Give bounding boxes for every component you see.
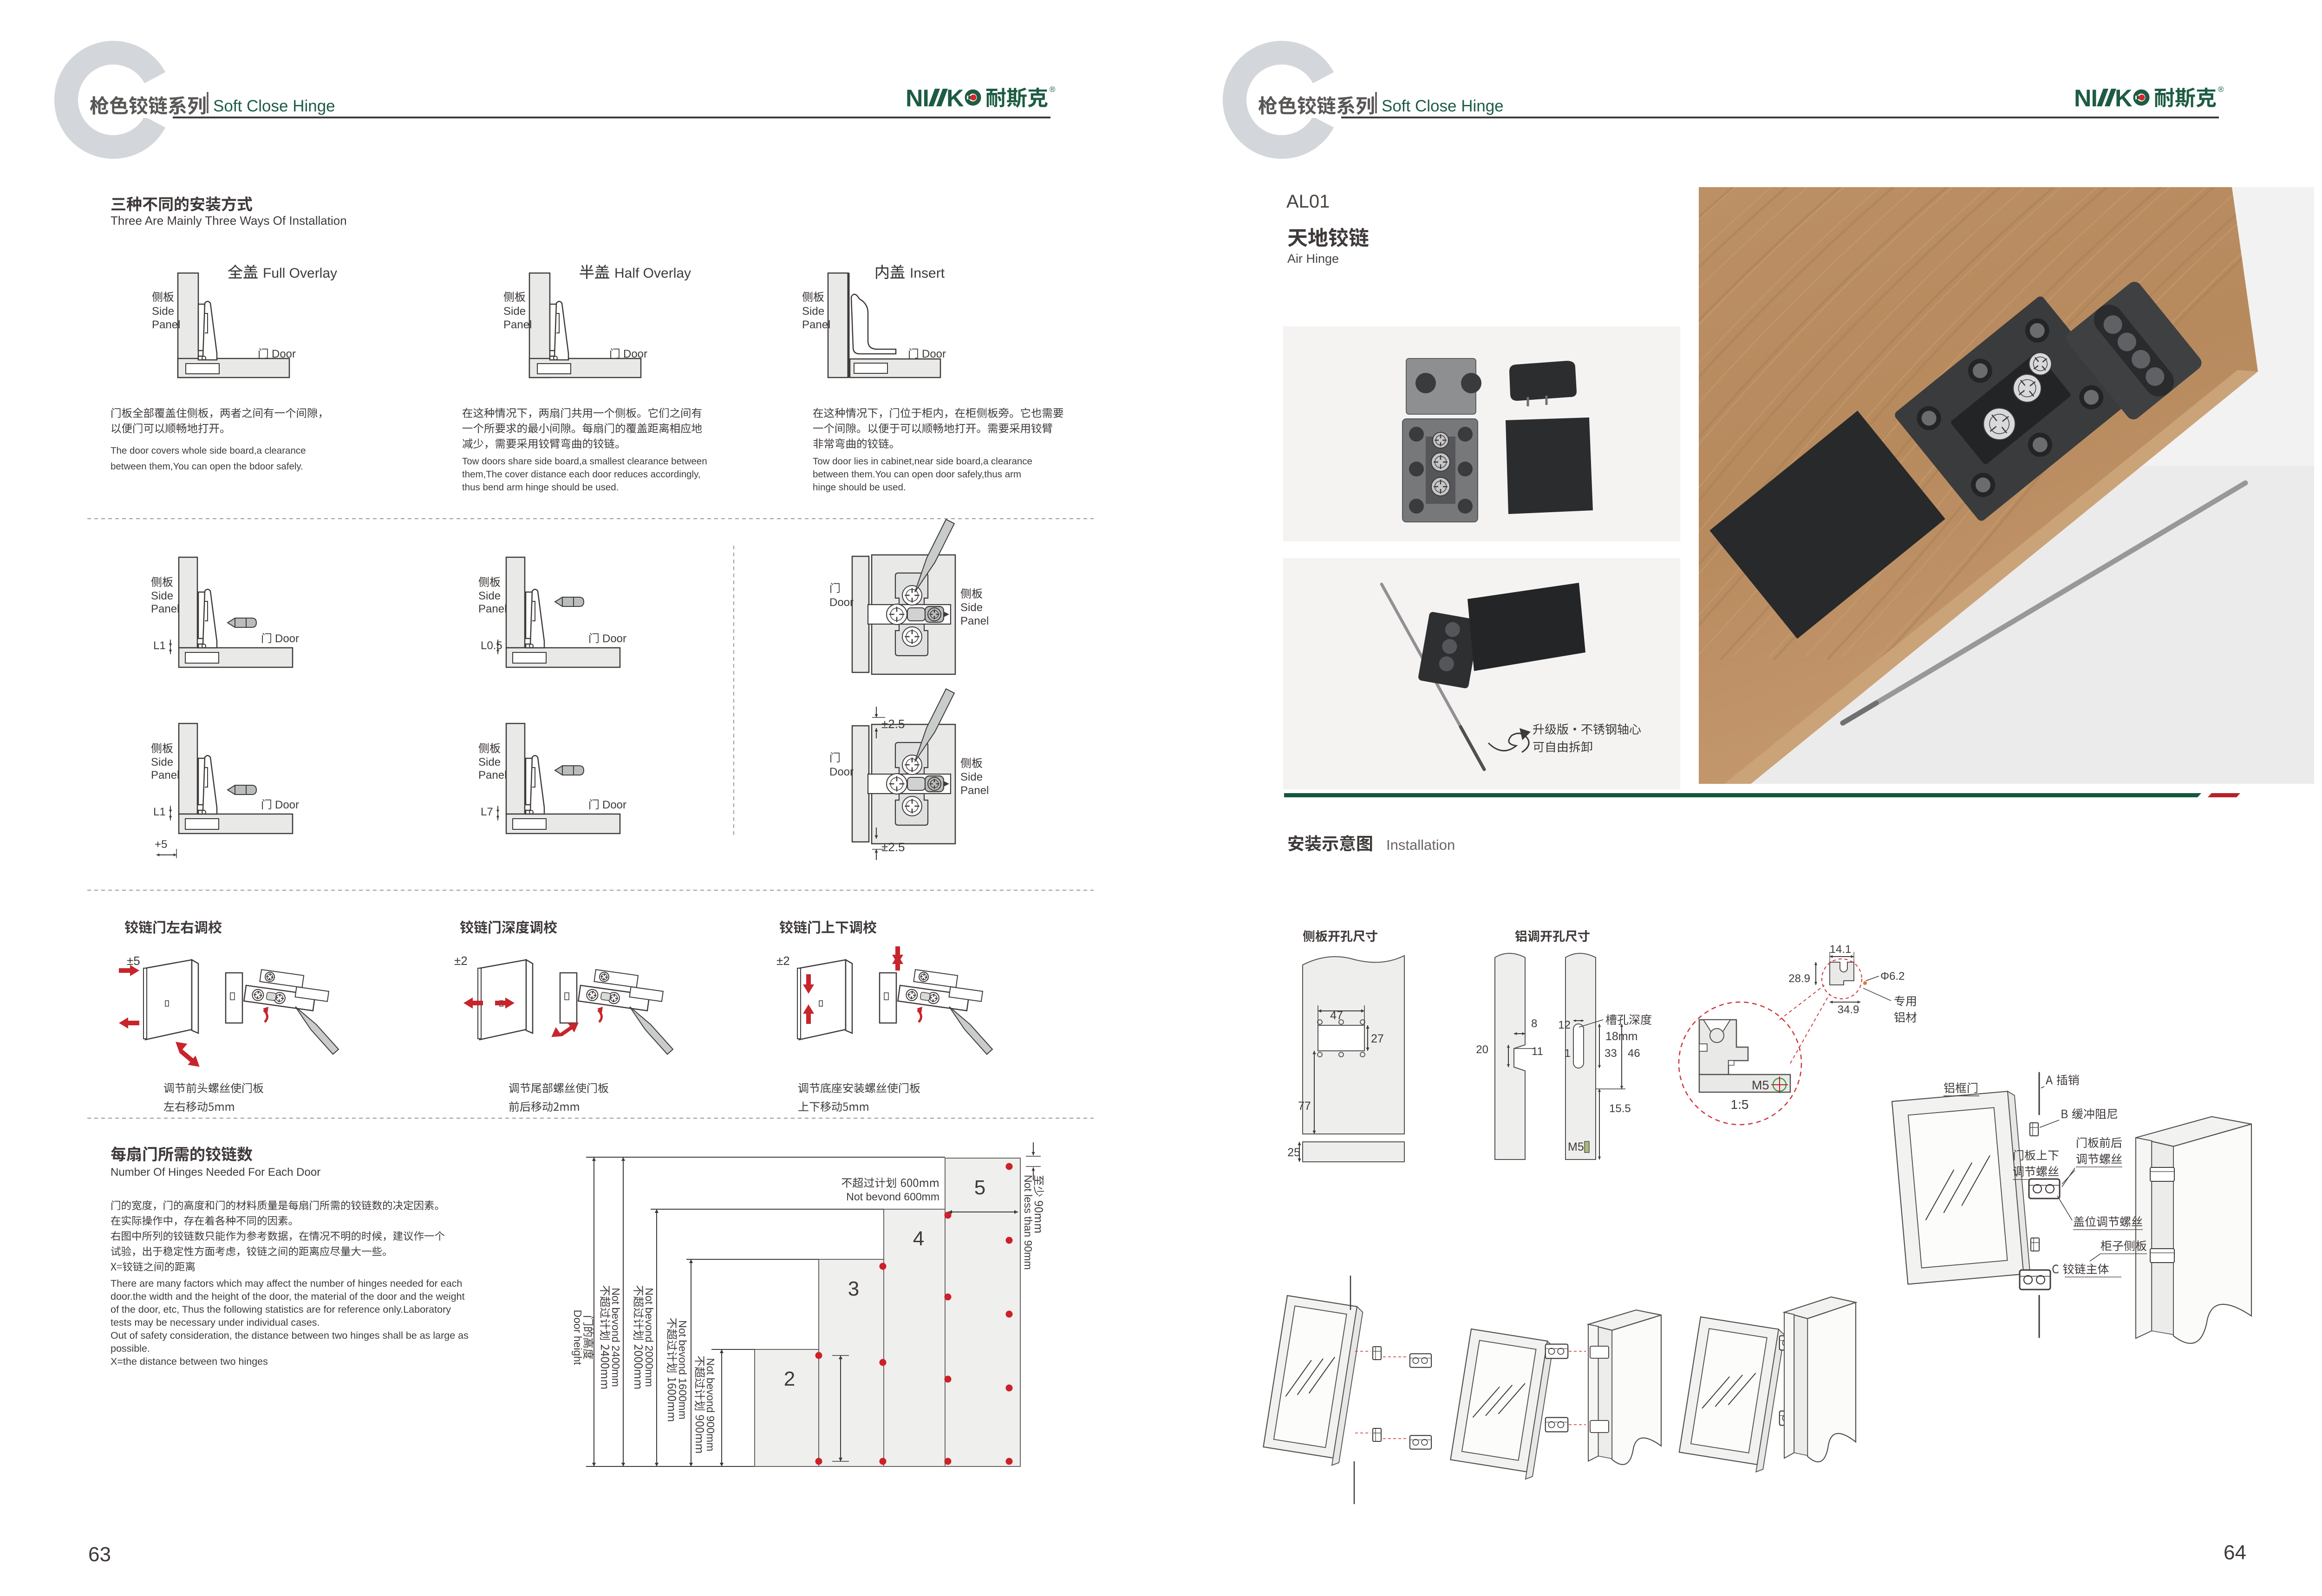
svg-text:Door: Door	[275, 799, 299, 811]
svg-text:8: 8	[1531, 1017, 1537, 1030]
svg-text:Panel: Panel	[503, 319, 532, 331]
svg-text:64: 64	[2224, 1541, 2246, 1564]
svg-text:Side: Side	[802, 305, 824, 318]
svg-text:Not less than 90mm: Not less than 90mm	[1022, 1175, 1034, 1270]
svg-text:Door: Door	[275, 632, 299, 645]
svg-text:Panel: Panel	[960, 615, 989, 627]
svg-text:2: 2	[784, 1368, 795, 1390]
svg-text:Door: Door	[829, 766, 854, 778]
svg-text:possible.: possible.	[111, 1343, 150, 1354]
svg-text:thus bend arm hinge should be: thus bend arm hinge should be used.	[462, 482, 619, 493]
svg-text:Panel: Panel	[478, 603, 507, 615]
svg-text:hinge should be used.: hinge should be used.	[813, 482, 906, 493]
svg-text:28.9: 28.9	[1788, 972, 1810, 985]
svg-text:M5: M5	[1752, 1078, 1769, 1092]
svg-text:K: K	[2115, 85, 2133, 112]
svg-text:Door height: Door height	[572, 1310, 584, 1366]
svg-text:±2.5: ±2.5	[881, 840, 905, 854]
svg-text:L1: L1	[153, 639, 166, 652]
svg-text:12: 12	[1558, 1019, 1571, 1031]
svg-text:1: 1	[1565, 1047, 1571, 1060]
svg-text:20: 20	[1476, 1043, 1488, 1056]
svg-text:between them.You can open door: between them.You can open door safely,th…	[813, 469, 1021, 480]
svg-text:K: K	[946, 85, 964, 112]
svg-text:34.9: 34.9	[1838, 1003, 1859, 1016]
svg-text:of the door, etc, Thus the fol: of the door, etc, Thus the following sta…	[111, 1304, 451, 1315]
svg-text:Number Of Hinges Needed For Ea: Number Of Hinges Needed For Each Door	[111, 1166, 320, 1179]
svg-text:Panel: Panel	[802, 319, 830, 331]
svg-text:Door: Door	[602, 799, 626, 811]
svg-text:Door: Door	[272, 348, 296, 360]
svg-text:Side: Side	[152, 305, 174, 318]
svg-text:between them,You can open the: between them,You can open the bdoor safe…	[111, 461, 303, 472]
svg-text:Side: Side	[151, 756, 173, 769]
svg-text:Door: Door	[623, 348, 647, 360]
svg-text:L7: L7	[481, 806, 493, 818]
svg-text:Installation: Installation	[1386, 837, 1455, 853]
svg-text:Soft Close Hinge: Soft Close Hinge	[1382, 97, 1504, 115]
svg-text:Not bevond 2000mm: Not bevond 2000mm	[643, 1288, 655, 1387]
svg-text:M5: M5	[1568, 1140, 1584, 1153]
svg-text:®: ®	[2218, 85, 2224, 94]
svg-text:L1: L1	[153, 806, 166, 818]
svg-text:14.1: 14.1	[1830, 943, 1852, 956]
svg-text:Side: Side	[478, 590, 501, 602]
svg-text:Φ6.2: Φ6.2	[1880, 970, 1905, 983]
svg-text:There are many factors which m: There are many factors which may affect …	[111, 1278, 462, 1289]
svg-text:NI: NI	[2074, 85, 2097, 112]
svg-text:Not bevond 2400mm: Not bevond 2400mm	[610, 1288, 622, 1387]
svg-text:NI: NI	[906, 85, 929, 112]
svg-text:L0.5: L0.5	[481, 639, 502, 652]
svg-text:15.5: 15.5	[1609, 1102, 1631, 1115]
svg-text:®: ®	[1050, 85, 1056, 94]
svg-text:25: 25	[1287, 1146, 1300, 1159]
svg-text:3: 3	[848, 1277, 859, 1300]
svg-text:Out of safety consideration, t: Out of safety consideration, the distanc…	[111, 1330, 469, 1341]
svg-text:door.the width and the height: door.the width and the height of the doo…	[111, 1291, 465, 1302]
svg-text:Panel: Panel	[151, 769, 179, 782]
svg-text:Door: Door	[602, 632, 626, 645]
svg-text:Side: Side	[960, 771, 983, 783]
svg-text:Panel: Panel	[960, 784, 989, 797]
svg-text:5: 5	[974, 1176, 985, 1199]
svg-text:Side: Side	[151, 590, 173, 602]
svg-text:Side: Side	[960, 601, 983, 614]
svg-text:AL01: AL01	[1286, 191, 1330, 212]
svg-text:46: 46	[1628, 1047, 1640, 1060]
svg-text:Panel: Panel	[478, 769, 507, 782]
svg-text:Three Are Mainly Three Ways Of: Three Are Mainly Three Ways Of Installat…	[111, 214, 347, 228]
svg-text:Full Overlay: Full Overlay	[263, 266, 337, 281]
svg-text:Not bevond 600mm: Not bevond 600mm	[846, 1191, 939, 1203]
svg-text:11: 11	[1532, 1045, 1543, 1058]
svg-text:The door covers whole side boa: The door covers whole side board,a clear…	[111, 445, 306, 456]
svg-text:Side: Side	[503, 305, 526, 318]
svg-text:Side: Side	[478, 756, 501, 769]
svg-text:27: 27	[1371, 1032, 1384, 1045]
svg-text:them,The cover distance each d: them,The cover distance each door reduce…	[462, 469, 701, 480]
svg-text:Not bevond 900mm: Not bevond 900mm	[704, 1358, 717, 1452]
svg-text:Door: Door	[829, 596, 854, 609]
svg-text:Air Hinge: Air Hinge	[1287, 252, 1339, 266]
svg-text:4: 4	[913, 1227, 924, 1250]
svg-text:Tow door lies in cabinet,near: Tow door lies in cabinet,near side board…	[813, 456, 1032, 467]
svg-text:Panel: Panel	[152, 319, 180, 331]
svg-text:1:5: 1:5	[1731, 1097, 1749, 1112]
svg-text:+5: +5	[155, 838, 167, 851]
svg-text:Half Overlay: Half Overlay	[614, 266, 691, 281]
svg-text:77: 77	[1298, 1100, 1311, 1113]
svg-text:63: 63	[88, 1543, 111, 1566]
svg-text:33: 33	[1605, 1047, 1617, 1060]
svg-text:±2: ±2	[454, 954, 468, 968]
svg-text:Insert: Insert	[910, 266, 945, 281]
svg-text:±2: ±2	[776, 954, 790, 968]
svg-text:±5: ±5	[127, 954, 140, 968]
svg-text:Panel: Panel	[151, 603, 179, 615]
svg-text:±2.5: ±2.5	[881, 717, 905, 731]
svg-text:Not bevond 1600mm: Not bevond 1600mm	[677, 1320, 689, 1420]
svg-text:Door: Door	[922, 348, 946, 360]
svg-text:Tow doors share side board,a s: Tow doors share side board,a smallest cl…	[462, 456, 707, 467]
svg-text:tests may be necessary under i: tests may be necessary under individual …	[111, 1317, 320, 1328]
svg-text:X=the distance between two hin: X=the distance between two hinges	[111, 1356, 268, 1367]
svg-text:18mm: 18mm	[1605, 1030, 1637, 1043]
svg-text:Soft Close Hinge: Soft Close Hinge	[213, 97, 335, 115]
